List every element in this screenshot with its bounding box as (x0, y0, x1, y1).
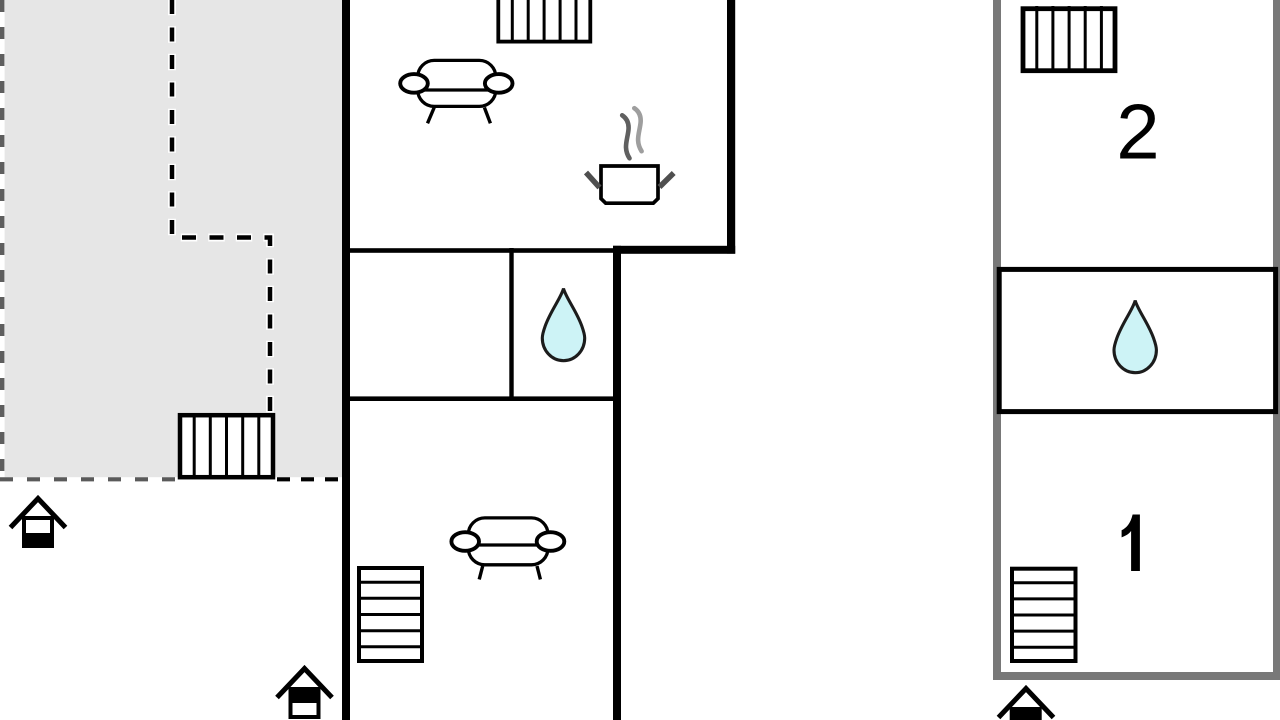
svg-text:2: 2 (1116, 88, 1159, 176)
